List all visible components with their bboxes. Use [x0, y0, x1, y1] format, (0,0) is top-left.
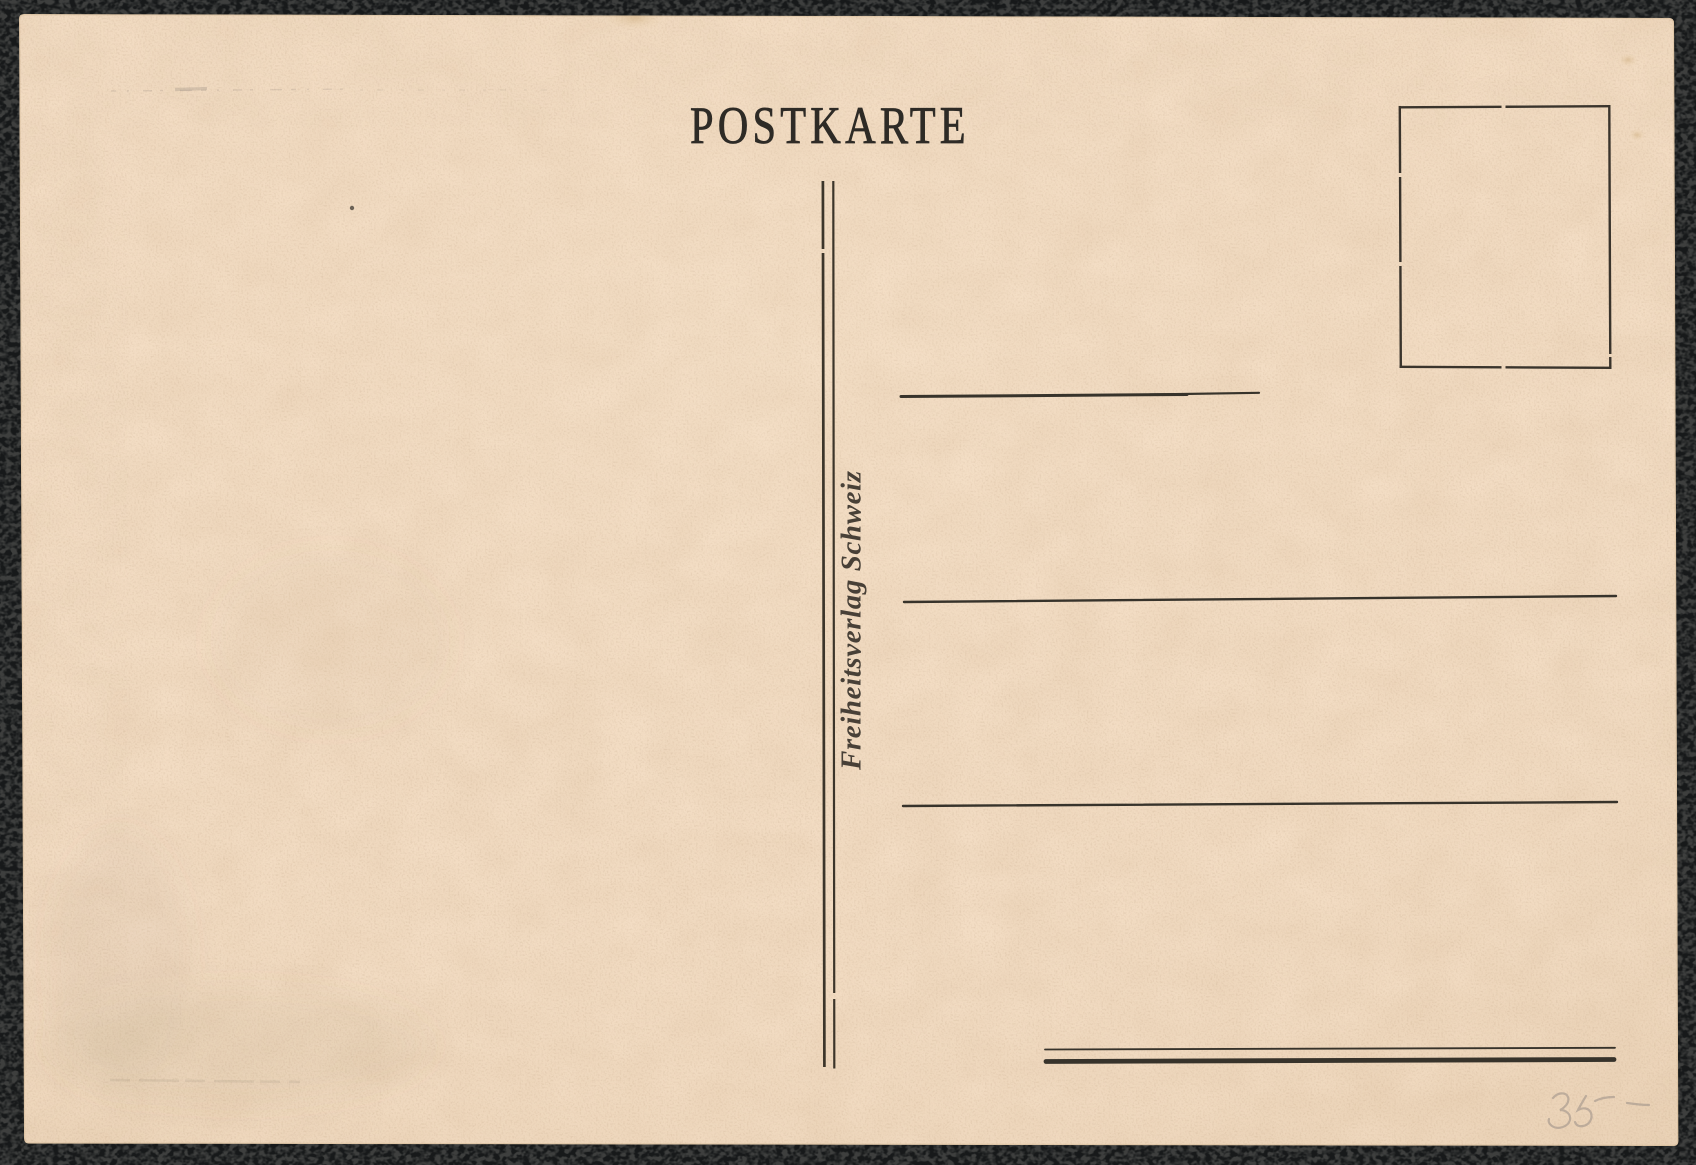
svg-text:Freiheitsverlag Schweiz: Freiheitsverlag Schweiz	[836, 470, 868, 771]
svg-text:POSTKARTE: POSTKARTE	[690, 97, 970, 156]
